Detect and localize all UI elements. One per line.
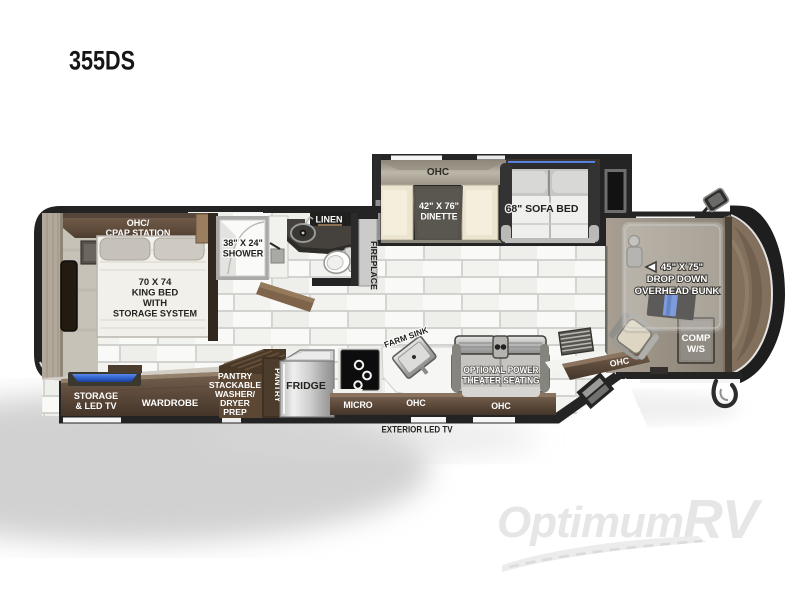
svg-text:COMP: COMP: [682, 333, 711, 344]
svg-text:OHC: OHC: [491, 401, 511, 411]
svg-text:355DS: 355DS: [69, 46, 135, 76]
svg-text:STORAGE: STORAGE: [74, 391, 118, 401]
svg-text:OHC: OHC: [427, 167, 449, 178]
svg-text:FRIDGE: FRIDGE: [286, 380, 326, 392]
svg-text:PREP: PREP: [223, 407, 247, 417]
svg-text:OHC: OHC: [406, 398, 426, 408]
svg-text:42" X 76": 42" X 76": [419, 201, 459, 212]
svg-text:DROP DOWN: DROP DOWN: [647, 274, 708, 285]
svg-text:EXTERIOR LED TV: EXTERIOR LED TV: [382, 425, 454, 435]
svg-text:SHOWER: SHOWER: [223, 249, 264, 259]
svg-text:68" SOFA BED: 68" SOFA BED: [506, 203, 579, 215]
svg-text:MICRO: MICRO: [343, 400, 372, 410]
svg-text:WARDROBE: WARDROBE: [142, 398, 198, 409]
svg-text:STORAGE SYSTEM: STORAGE SYSTEM: [113, 309, 197, 320]
svg-text:WITH: WITH: [143, 298, 167, 309]
svg-text:FIREPLACE: FIREPLACE: [369, 241, 379, 290]
svg-text:45" X 75": 45" X 75": [661, 262, 703, 273]
svg-text:LINEN: LINEN: [316, 215, 343, 225]
svg-text:THEATER SEATING: THEATER SEATING: [463, 376, 540, 386]
svg-text:OptimumRV: OptimumRV: [497, 488, 763, 550]
svg-text:OHC/: OHC/: [127, 218, 150, 228]
svg-text:38" X 24": 38" X 24": [223, 238, 263, 248]
svg-text:70 X 74: 70 X 74: [139, 277, 172, 288]
svg-text:KING BED: KING BED: [132, 288, 179, 299]
svg-text:W/S: W/S: [687, 344, 706, 355]
svg-text:OPTIONAL POWER: OPTIONAL POWER: [464, 365, 539, 375]
svg-text:OVERHEAD BUNK: OVERHEAD BUNK: [635, 286, 720, 297]
svg-text:& LED TV: & LED TV: [75, 401, 116, 411]
svg-text:DINETTE: DINETTE: [421, 212, 459, 223]
